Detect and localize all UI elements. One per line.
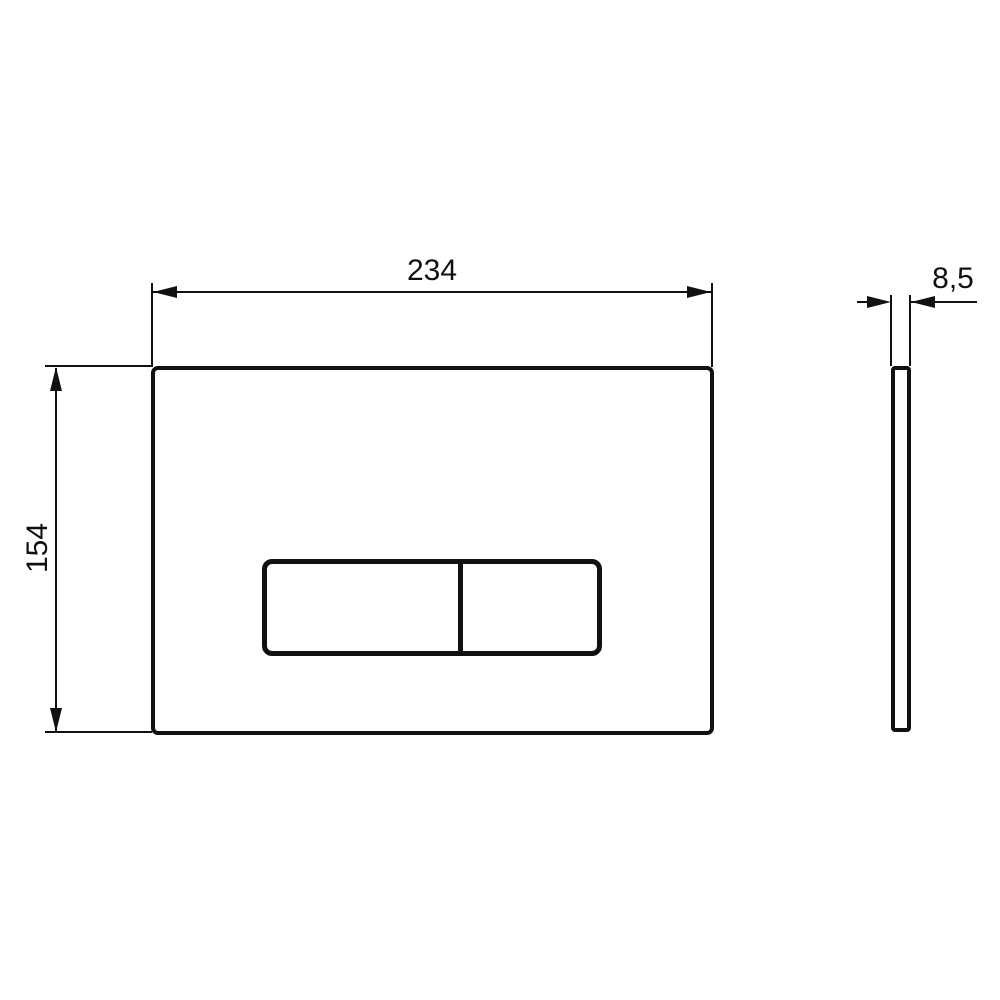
arrow-down-icon [50, 708, 62, 732]
height-dimension-line [55, 368, 57, 732]
front-view-plate-outline [151, 366, 714, 735]
technical-drawing: 234 154 8,5 [0, 0, 1000, 1000]
arrow-right-icon [687, 286, 711, 298]
height-dimension-label: 154 [23, 498, 53, 598]
thickness-dimension-label: 8,5 [926, 264, 980, 294]
width-extension-line-right [711, 283, 713, 367]
arrow-left-icon [153, 286, 177, 298]
width-dimension-line [153, 291, 711, 293]
flush-button-panel-outline [262, 559, 602, 656]
width-dimension-label: 234 [382, 256, 482, 286]
arrow-right-icon [867, 296, 891, 308]
flush-button-divider-line [458, 561, 463, 654]
arrow-up-icon [50, 367, 62, 391]
side-view-profile-outline [891, 366, 911, 732]
arrow-left-icon [911, 296, 935, 308]
